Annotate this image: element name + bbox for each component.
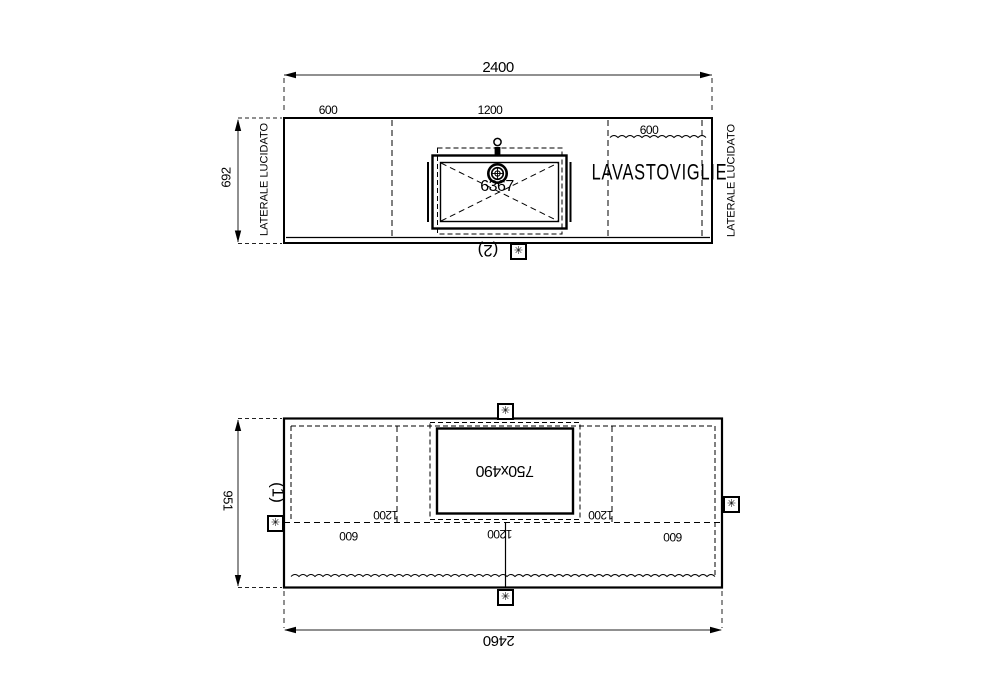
dim-text-offset-left-600: 600 xyxy=(329,530,369,542)
cad-drawing-sheet: 2400 600 1200 600 LAVASTOVIGLIE LATERALE… xyxy=(0,0,1000,700)
join-marker-icon: ✳ xyxy=(723,496,740,513)
side-finish-label-right: LATERALE LUCIDATO xyxy=(727,116,738,246)
join-marker-icon: ✳ xyxy=(510,243,527,260)
appliance-label: LAVASTOVIGLIE xyxy=(591,161,728,183)
dim-text-segment-left-1200: 1200 xyxy=(361,509,411,521)
faucet-knob xyxy=(494,138,501,145)
bottom-view-outline xyxy=(284,419,722,588)
join-marker-icon: ✳ xyxy=(497,589,514,606)
dim-arrow xyxy=(284,627,296,633)
dim-arrow xyxy=(700,72,712,78)
faucet-stem xyxy=(495,147,501,156)
dim-text-overall-width-bottom: 2460 xyxy=(469,633,529,648)
dim-text-depth-bottom: 951 xyxy=(222,476,235,526)
dim-arrow xyxy=(235,420,241,432)
piece-number-bottom: (1) xyxy=(270,473,287,513)
side-finish-label-left: LATERALE LUCIDATO xyxy=(260,115,271,245)
dim-text-offset-center-1200: 1200 xyxy=(475,528,525,540)
cutout-size-label: 750x490 xyxy=(470,462,540,478)
sink-code-label: 6367 xyxy=(472,179,522,195)
join-marker-icon: ✳ xyxy=(267,515,284,532)
dim-text-segment-600: 600 xyxy=(308,104,348,116)
join-marker-icon: ✳ xyxy=(497,403,514,420)
piece-number-top: (2) xyxy=(468,242,508,259)
dim-text-dishwasher-600: 600 xyxy=(629,124,669,136)
dim-text-offset-right-600: 600 xyxy=(653,531,693,543)
dim-arrow xyxy=(235,575,241,587)
dim-arrow xyxy=(235,119,241,131)
break-wave-line xyxy=(291,575,715,577)
dim-text-overall-width-top: 2400 xyxy=(468,60,528,75)
dim-text-segment-right-1200: 1200 xyxy=(576,509,626,521)
dim-arrow xyxy=(710,627,722,633)
dim-text-depth-top: 692 xyxy=(220,153,233,203)
dim-arrow xyxy=(235,231,241,243)
dim-arrow xyxy=(284,72,296,78)
dim-text-segment-1200: 1200 xyxy=(465,104,515,116)
